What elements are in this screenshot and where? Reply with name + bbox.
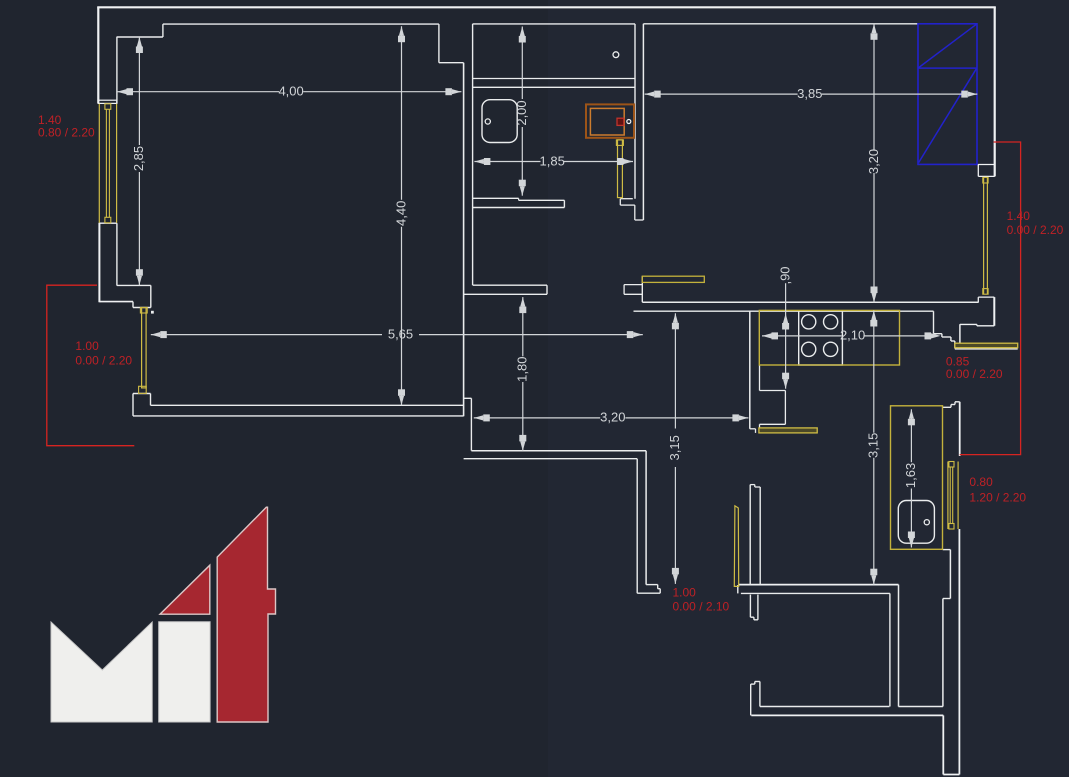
svg-text:0.00 / 2.10: 0.00 / 2.10	[673, 600, 730, 614]
svg-text:1.40: 1.40	[1007, 209, 1031, 223]
svg-text:3,20: 3,20	[600, 410, 625, 425]
svg-text:0.80: 0.80	[969, 475, 993, 489]
svg-text:3,15: 3,15	[667, 435, 682, 460]
svg-text:1,63: 1,63	[903, 463, 918, 488]
svg-text:0.00 / 2.20: 0.00 / 2.20	[75, 353, 132, 367]
svg-text:0.80 / 2.20: 0.80 / 2.20	[38, 126, 95, 140]
svg-text:1.20 / 2.20: 1.20 / 2.20	[969, 491, 1026, 505]
svg-text:4,00: 4,00	[278, 84, 303, 99]
svg-text:4,40: 4,40	[393, 201, 408, 226]
svg-text:1.00: 1.00	[673, 585, 697, 599]
svg-text:2,10: 2,10	[840, 328, 865, 343]
svg-text:1,80: 1,80	[515, 357, 530, 382]
svg-text:1,85: 1,85	[540, 153, 565, 168]
svg-text:0.00 / 2.20: 0.00 / 2.20	[1007, 223, 1064, 237]
svg-text:1.00: 1.00	[75, 339, 99, 353]
svg-text:0.00 / 2.20: 0.00 / 2.20	[946, 367, 1003, 381]
svg-text:2,85: 2,85	[131, 146, 146, 171]
svg-text:,90: ,90	[777, 266, 792, 284]
svg-text:3,85: 3,85	[797, 86, 822, 101]
svg-text:3,15: 3,15	[866, 433, 881, 458]
svg-text:5,65: 5,65	[388, 326, 413, 341]
svg-text:3,20: 3,20	[866, 149, 881, 174]
svg-text:2,00: 2,00	[514, 100, 529, 125]
